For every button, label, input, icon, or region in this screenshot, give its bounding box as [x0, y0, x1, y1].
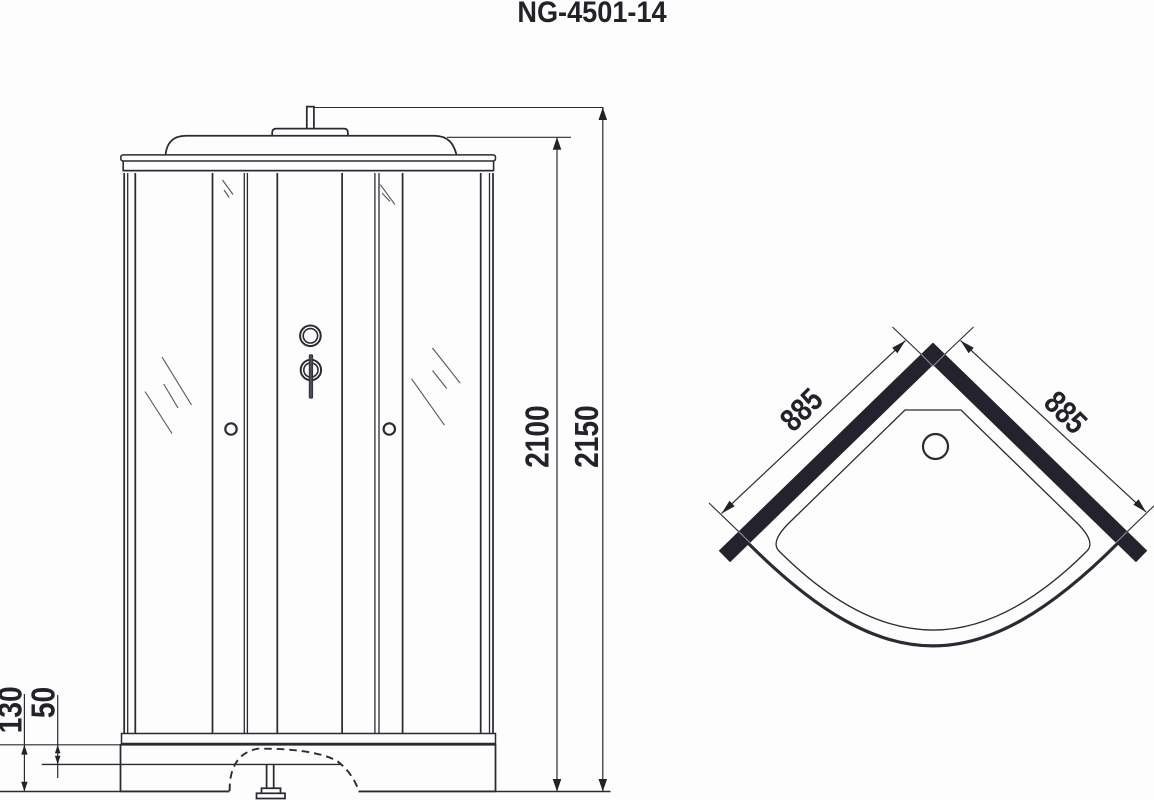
- svg-text:50: 50: [24, 687, 62, 718]
- svg-text:885: 885: [773, 382, 830, 439]
- svg-text:2100: 2100: [518, 405, 556, 468]
- svg-text:885: 885: [1037, 384, 1094, 441]
- svg-text:NG-4501-14: NG-4501-14: [517, 0, 666, 29]
- svg-text:2150: 2150: [568, 405, 606, 468]
